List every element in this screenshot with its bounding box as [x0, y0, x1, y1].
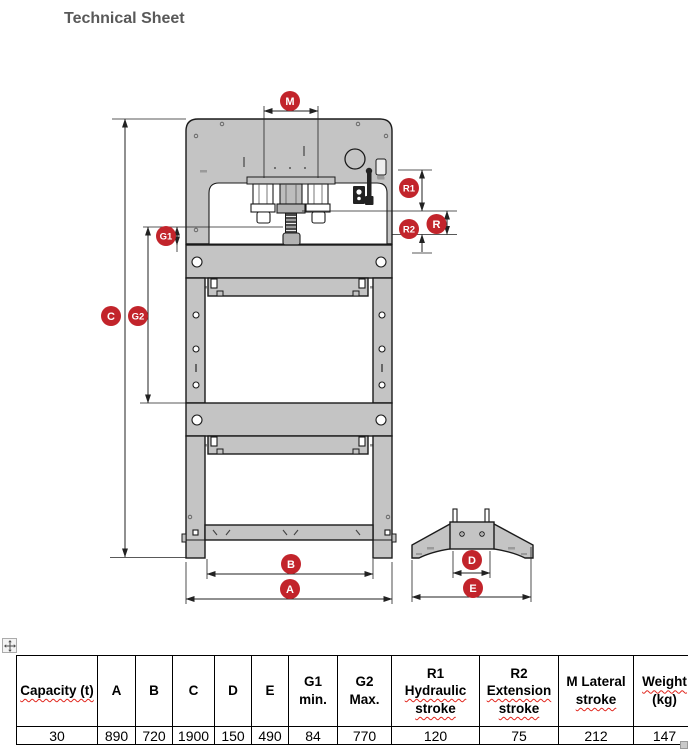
spec-col-header-g2-max[interactable]: G2Max. — [338, 656, 392, 727]
spec-col-header-e[interactable]: E — [252, 656, 289, 727]
release-valve — [353, 186, 365, 204]
spec-col-header-weight[interactable]: Weight(kg) — [634, 656, 688, 727]
spec-col-header-r1-hydraulic-stroke[interactable]: R1Hydraulicstroke — [392, 656, 480, 727]
spec-col-header-r2-extension-stroke[interactable]: R2Extensionstroke — [480, 656, 559, 727]
spec-col-header-b[interactable]: B — [136, 656, 173, 727]
svg-text:R: R — [433, 219, 441, 231]
spec-col-header-a[interactable]: A — [98, 656, 136, 727]
svg-text:G1: G1 — [160, 232, 173, 243]
dim-label-r2: R2 — [399, 219, 419, 239]
svg-text:M: M — [285, 96, 294, 108]
svg-text:R2: R2 — [403, 225, 415, 236]
dim-label-e: E — [463, 578, 483, 598]
svg-text:A: A — [286, 584, 294, 596]
spec-value-a[interactable]: 890 — [98, 727, 136, 745]
middle-bolster — [186, 403, 392, 454]
svg-text:B: B — [287, 559, 295, 571]
pressure-gauge — [345, 149, 365, 169]
spec-value-g1-min[interactable]: 84 — [289, 727, 338, 745]
spec-value-m-lateral-stroke[interactable]: 212 — [559, 727, 634, 745]
spec-table: Capacity (t)ABCDEG1min.G2Max.R1Hydraulic… — [16, 655, 688, 745]
spec-value-d[interactable]: 150 — [215, 727, 252, 745]
svg-text:C: C — [107, 311, 115, 323]
spec-col-header-g1-min[interactable]: G1min. — [289, 656, 338, 727]
spec-value-capacity[interactable]: 30 — [17, 727, 98, 745]
spec-value-c[interactable]: 1900 — [173, 727, 215, 745]
dim-label-b: B — [281, 554, 301, 574]
svg-text:E: E — [469, 583, 476, 595]
spec-col-header-m-lateral-stroke[interactable]: M Lateralstroke — [559, 656, 634, 727]
dim-label-g2: G2 — [128, 306, 148, 326]
table-move-handle[interactable] — [2, 638, 17, 653]
oil-port — [376, 159, 386, 175]
dim-label-a: A — [280, 579, 300, 599]
press-front-view — [182, 119, 396, 558]
dim-label-m: M — [280, 91, 300, 111]
dim-label-d: D — [462, 550, 482, 570]
svg-text:G2: G2 — [132, 312, 145, 323]
spec-table-header-row: Capacity (t)ABCDEG1min.G2Max.R1Hydraulic… — [17, 656, 688, 727]
press-columns-upper — [186, 278, 392, 403]
dim-label-r: R — [427, 214, 447, 234]
svg-text:R1: R1 — [403, 184, 416, 195]
spec-col-header-c[interactable]: C — [173, 656, 215, 727]
spec-value-r2-extension-stroke[interactable]: 75 — [480, 727, 559, 745]
dim-label-c: C — [101, 306, 121, 326]
dim-label-r1: R1 — [399, 178, 419, 198]
dim-label-g1: G1 — [156, 226, 176, 246]
move-icon — [4, 640, 16, 652]
spec-value-r1-hydraulic-stroke[interactable]: 120 — [392, 727, 480, 745]
base-crossbeam — [205, 525, 373, 540]
svg-text:D: D — [468, 555, 476, 567]
cylinder-mounting-plate — [247, 177, 335, 184]
spec-value-g2-max[interactable]: 770 — [338, 727, 392, 745]
table-resize-handle[interactable] — [680, 741, 688, 749]
spec-col-header-d[interactable]: D — [215, 656, 252, 727]
spec-value-b[interactable]: 720 — [136, 727, 173, 745]
press-diagram: M R1 R2 R G1 C G2 B A D E — [0, 0, 688, 640]
spec-col-header-capacity[interactable]: Capacity (t) — [17, 656, 98, 727]
technical-sheet-page: { "title": "Technical Sheet", "accent_co… — [0, 0, 688, 750]
spec-table-data-row: 3089072019001504908477012075212147 — [17, 727, 688, 745]
upper-bolster — [186, 245, 392, 296]
spec-value-e[interactable]: 490 — [252, 727, 289, 745]
